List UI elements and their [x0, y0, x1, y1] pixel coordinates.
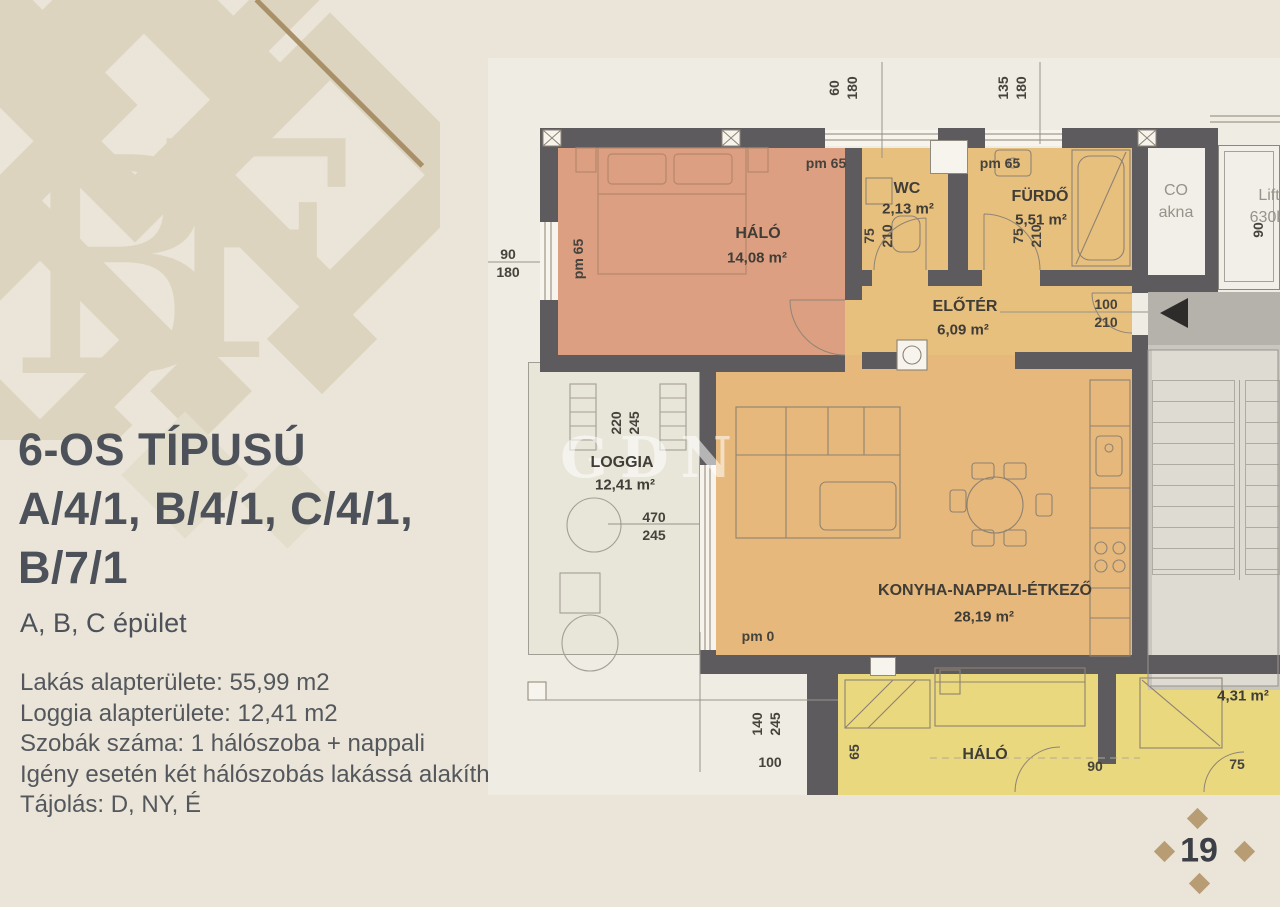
dim-lift: 90: [1249, 222, 1267, 238]
page-number: 19: [1180, 832, 1218, 871]
page-diamond: [1154, 841, 1175, 862]
dim-entry-door: 100 210: [1094, 295, 1117, 331]
room-area-wc: 2,13 m²: [882, 201, 934, 218]
dim-halo-pm-top: pm 65: [806, 154, 846, 172]
room-label-furdo: FÜRDŐ: [1012, 188, 1069, 206]
room-area-konyha: 28,19 m²: [954, 609, 1014, 626]
room-area-halo: 14,08 m²: [727, 250, 787, 267]
door-arcs: [790, 214, 1244, 792]
dim-bottom: 140 245: [748, 712, 784, 735]
page-diamond: [1187, 808, 1208, 829]
dim-konyha-pm: pm 0: [742, 627, 775, 645]
dim-neighbor-left: 65: [845, 744, 863, 760]
living-furniture: [736, 407, 1052, 546]
shaft-label: akna: [1159, 204, 1194, 222]
room-area-neighbor-shower: 4,31 m²: [1217, 688, 1269, 705]
dim-top-window-2: 135 180: [994, 76, 1030, 99]
dim-top-window-1: 60 180: [825, 76, 861, 99]
dim-neighbor-door: 75: [1229, 755, 1245, 773]
page-diamond: [1189, 873, 1210, 894]
floor-plan: GDN HÁLÓ 14,08 m² WC 2,13 m² FÜRDŐ 5,51 …: [488, 58, 1280, 795]
dim-wc-door: 75 210: [860, 224, 896, 247]
room-area-loggia: 12,41 m²: [595, 477, 655, 494]
title-line: A/4/1, B/4/1, C/4/1,: [18, 479, 413, 538]
subtitle: A, B, C épület: [20, 608, 187, 639]
detail-line: Tájolás: D, NY, É: [20, 790, 530, 821]
logo-monogram-f: F: [150, 104, 358, 404]
dim-neighbor-bottom: 90: [1087, 757, 1103, 775]
page-title: 6-OS TÍPUSÚ A/4/1, B/4/1, C/4/1, B/7/1: [18, 420, 413, 597]
dim-loggia: 470 245: [642, 508, 665, 544]
dim-halo-pm-left: pm 65: [569, 239, 587, 279]
room-label-halo: HÁLÓ: [735, 225, 780, 243]
dim-furdo-pm-top: pm 65: [980, 154, 1020, 172]
neighbor-furniture: [845, 668, 1222, 758]
room-label-loggia: LOGGIA: [590, 454, 653, 472]
detail-line: Lakás alapterülete: 55,99 m2: [20, 668, 530, 699]
room-area-eloter: 6,09 m²: [937, 322, 989, 339]
room-label-wc: WC: [894, 180, 921, 198]
room-label-konyha: KONYHA-NAPPALI-ÉTKEZŐ: [878, 582, 1092, 600]
dim-loggia-window: 220 245: [607, 411, 643, 434]
room-label-neighbor-halo: HÁLÓ: [962, 746, 1007, 764]
shaft-label: CO: [1164, 182, 1188, 200]
dim-bottom-2: 100: [758, 753, 781, 771]
dim-furdo-door: 75 210: [1009, 224, 1045, 247]
page-diamond: [1234, 841, 1255, 862]
lift-label: Lift: [1258, 187, 1279, 205]
detail-line: Loggia alapterülete: 12,41 m2: [20, 699, 530, 730]
detail-line: Szobák száma: 1 hálószoba + nappali: [20, 729, 530, 760]
entrance-arrow-icon: [1160, 298, 1188, 328]
title-line: B/7/1: [18, 538, 413, 597]
room-label-eloter: ELŐTÉR: [933, 298, 998, 316]
apartment-details: Lakás alapterülete: 55,99 m2 Loggia alap…: [20, 668, 530, 821]
brand-logo: B F: [0, 0, 440, 440]
title-line: 6-OS TÍPUSÚ: [18, 420, 413, 479]
dim-left-window: 90 180: [496, 245, 519, 281]
detail-line: Igény esetén két hálószobás lakássá alak…: [20, 760, 530, 791]
kitchen-fixtures: [1090, 380, 1130, 656]
